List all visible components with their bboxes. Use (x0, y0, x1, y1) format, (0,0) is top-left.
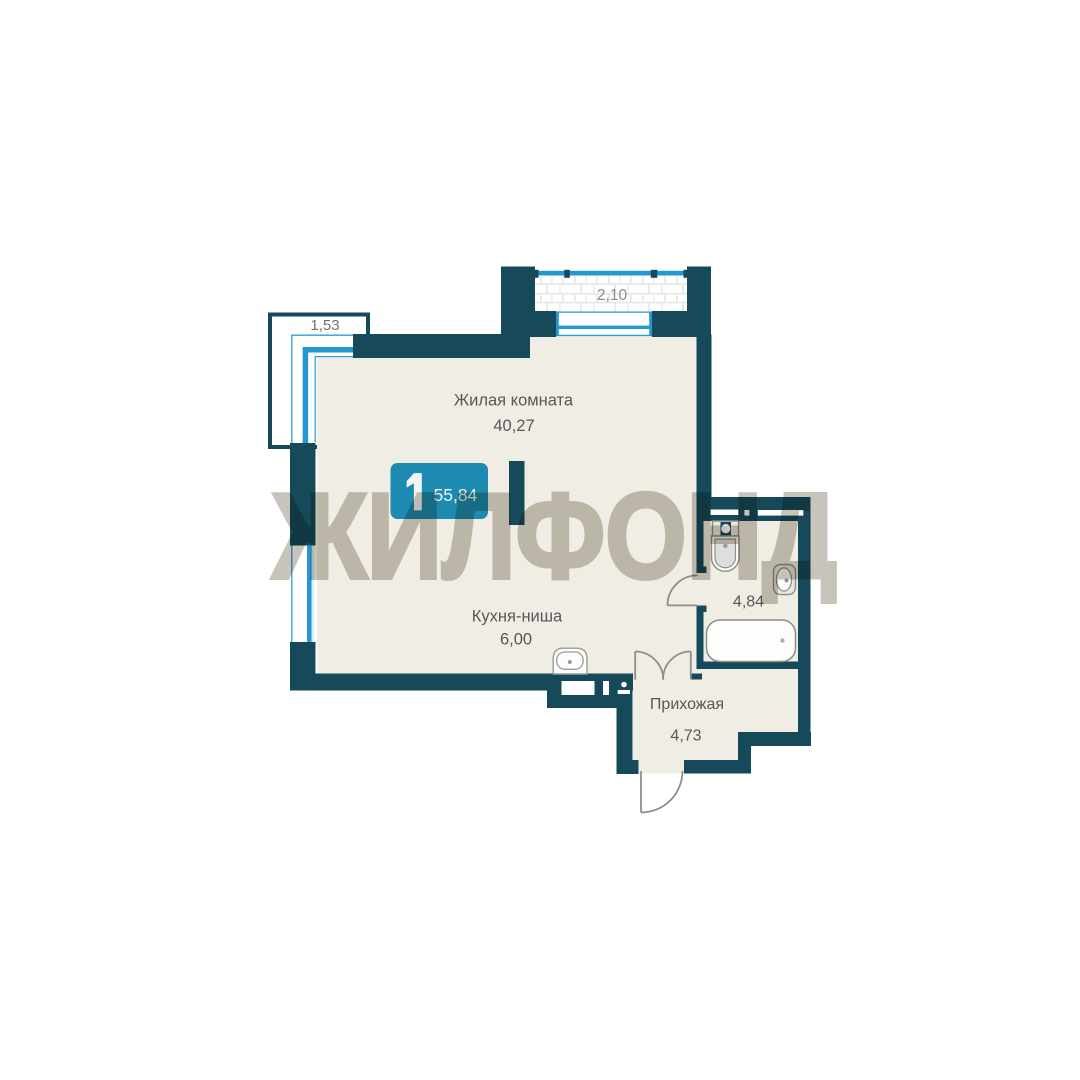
svg-text:Прихожая: Прихожая (650, 696, 724, 713)
svg-text:4,73: 4,73 (670, 728, 701, 745)
svg-text:40,27: 40,27 (493, 417, 534, 435)
svg-text:1,53: 1,53 (310, 317, 339, 334)
svg-text:2,10: 2,10 (597, 287, 628, 304)
svg-text:6,00: 6,00 (500, 631, 532, 649)
svg-text:Кухня-ниша: Кухня-ниша (472, 608, 563, 626)
svg-text:Жилая комната: Жилая комната (454, 392, 574, 410)
svg-text:ЖИЛФОНД: ЖИЛФОНД (271, 468, 837, 604)
